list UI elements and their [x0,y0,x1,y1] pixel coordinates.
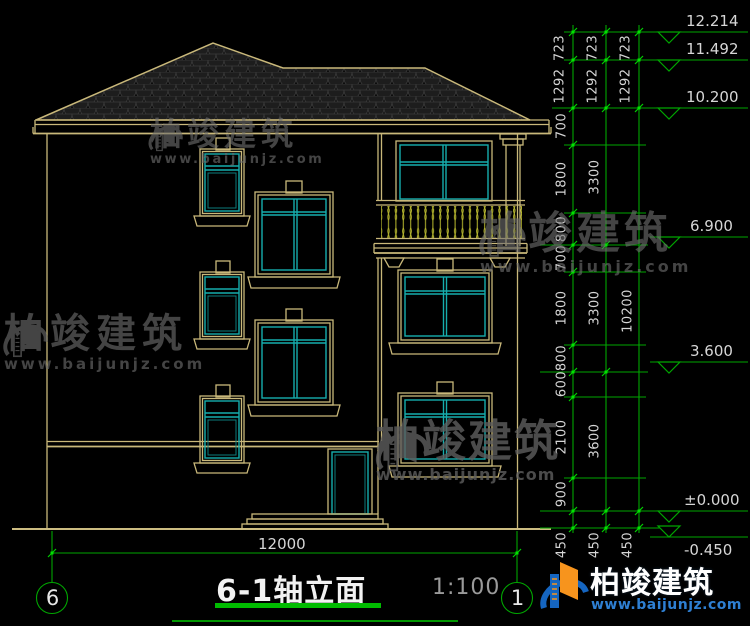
brand-logo-url: www.baijunjz.com [591,597,742,613]
elevation-drawing [0,0,750,626]
dim-label: 1292 [553,68,568,103]
title-underline-thin [172,620,458,622]
level-label: -0.450 [684,541,732,559]
level-label: 10.200 [686,88,739,106]
dim-label: 723 [586,35,601,61]
dim-label: 3600 [588,423,603,458]
balcony [374,201,527,268]
drawing-scale: 1:100 [432,575,500,600]
level-label: 6.900 [690,217,733,235]
balustrade [381,206,522,238]
hip-roof [36,43,530,120]
dim-label: 723 [619,35,634,61]
dim-label: 700 [555,245,570,271]
dim-label: 900 [555,481,570,507]
dim-label: 700 [555,113,570,139]
overall-dim: 12000 [258,535,306,553]
dim-label: 450 [555,532,570,558]
level-label: 3.600 [690,342,733,360]
dim-label: 1292 [619,68,634,103]
level-label: 11.492 [686,40,739,58]
dim-label: 450 [621,532,636,558]
axis-bubble-1: 1 [502,583,533,614]
dim-label: 3300 [588,290,603,325]
cad-elevation-screenshot: 723 723 723 1292 1292 1292 700 1800 800 … [0,0,750,626]
level-label: 12.214 [686,12,739,30]
title-underline [215,603,381,608]
dim-label: 1292 [586,68,601,103]
dim-label: 1800 [555,161,570,196]
dim-label: 600 [555,371,570,397]
dim-label: 2100 [555,419,570,454]
step [252,514,378,519]
dim-label: 3300 [588,159,603,194]
dim-label: 800 [555,345,570,371]
dim-label: 1800 [555,290,570,325]
dim-label: 10200 [621,289,636,333]
windows [194,138,501,477]
level-label: ±0.000 [684,491,740,509]
axis-bubble-6: 6 [37,583,68,614]
brand-logo-text: 柏竣建筑 [590,558,714,602]
dim-label: 450 [588,532,603,558]
eave-band [33,120,551,134]
entrance-door [242,449,388,529]
dim-label: 723 [553,35,568,61]
dim-label: 800 [555,216,570,242]
step [247,519,383,524]
brand-logo-icon [536,556,590,622]
